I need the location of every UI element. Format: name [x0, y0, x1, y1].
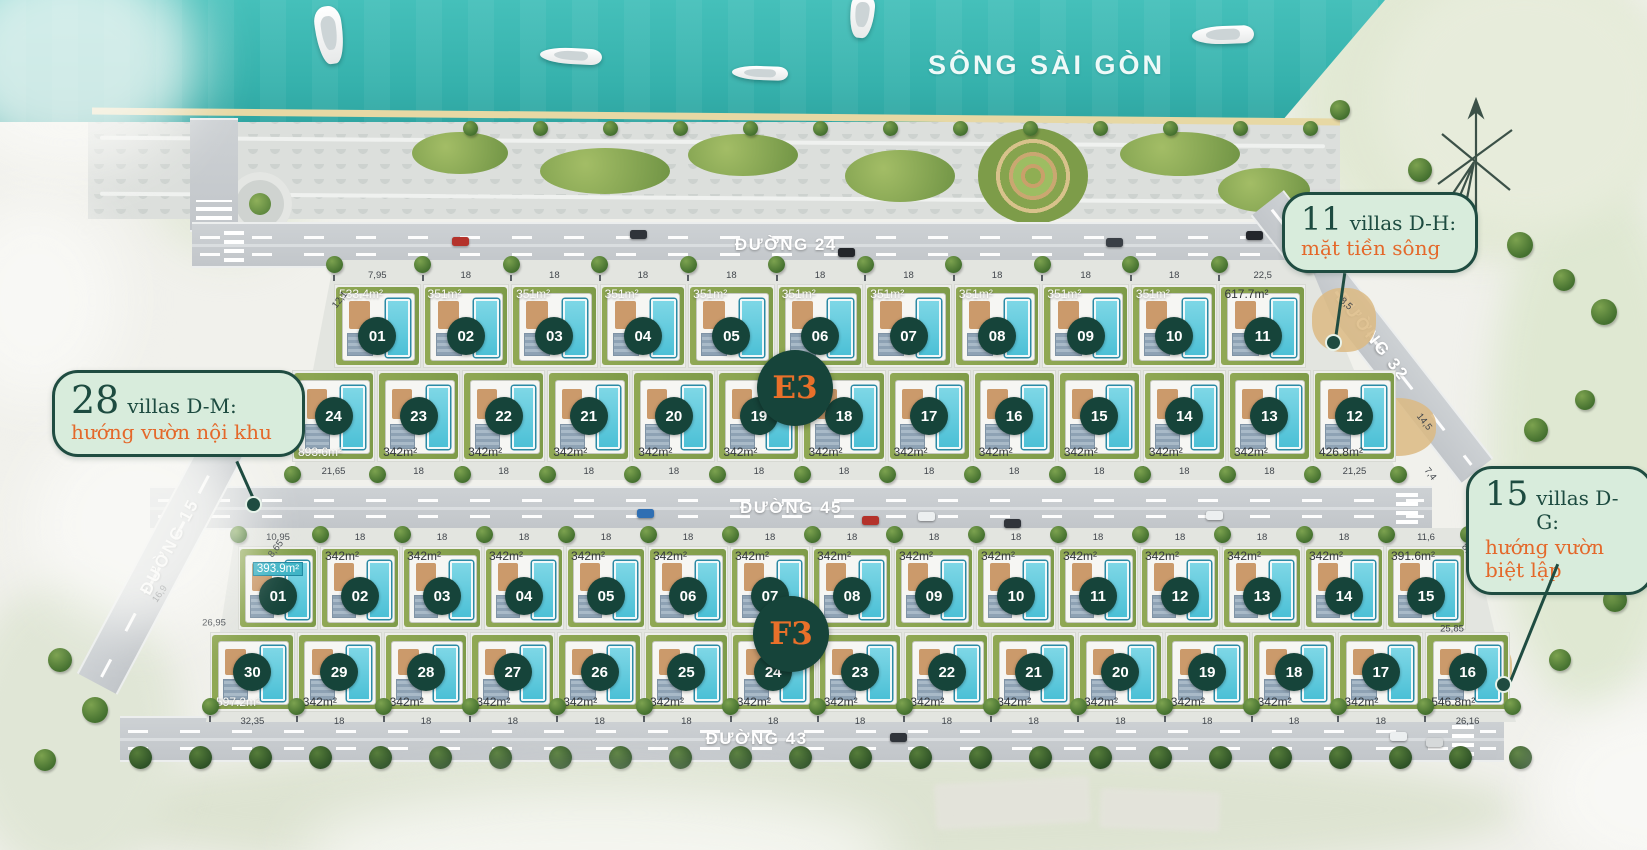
villa-plot-F3-27[interactable]: 27342m²18: [470, 632, 555, 712]
callout-count: 28: [71, 381, 119, 419]
tree: [1553, 269, 1575, 291]
villa-number-badge[interactable]: 08: [833, 577, 871, 615]
villa-plot-F3-12[interactable]: 12342m²18: [1140, 546, 1220, 630]
park-lawn: [412, 132, 508, 174]
lot-dimension: 18: [1115, 716, 1126, 727]
tree: [82, 697, 108, 723]
villa-plot-E3-14[interactable]: 14342m²18: [1143, 370, 1226, 462]
villa-plot-E3-21[interactable]: 21342m²18: [547, 370, 630, 462]
villa-number-badge[interactable]: 23: [841, 653, 879, 691]
villa-number-badge[interactable]: 05: [712, 317, 750, 355]
villa-number-badge[interactable]: 08: [978, 317, 1016, 355]
lot-dimension: 18: [583, 466, 594, 477]
tree: [883, 121, 898, 136]
villa-area-label: 342m²: [979, 445, 1013, 459]
villa-number-badge[interactable]: 26: [581, 653, 619, 691]
tree: [1034, 256, 1051, 273]
car: [838, 248, 855, 257]
tree: [1390, 466, 1407, 483]
villa-number-badge[interactable]: 05: [587, 577, 625, 615]
villa-plot-E3-04[interactable]: 04351m²18: [600, 284, 687, 368]
villa-number-badge[interactable]: 24: [315, 397, 353, 435]
villa-area-label: 351m²: [1047, 287, 1081, 301]
villa-plot-E3-17[interactable]: 17342m²18: [888, 370, 971, 462]
tree: [1591, 299, 1617, 325]
callout-subtitle: mặt tiền sông: [1301, 237, 1459, 260]
lot-dimension: 21,25: [1343, 466, 1367, 477]
villa-area-label: 342m²: [407, 549, 441, 563]
villa-plot-F3-19[interactable]: 19342m²18: [1165, 632, 1250, 712]
villa-plot-F3-03[interactable]: 03342m²18: [402, 546, 482, 630]
tree: [640, 526, 657, 543]
tree: [539, 466, 556, 483]
villa-area-label: 342m²: [1171, 695, 1205, 709]
park-lawn: [540, 148, 670, 194]
dimension-tick: [643, 716, 645, 722]
callout-title: villas D-G:: [1536, 486, 1635, 534]
tree: [909, 746, 932, 769]
lot-dimension: 18: [815, 270, 826, 281]
callout-subtitle: hướng vườn nội khu: [71, 421, 286, 444]
callout-heading: 28 villas D-M:: [71, 381, 286, 419]
tree: [636, 698, 653, 715]
faint-building: [1099, 788, 1220, 832]
dimension-tick: [422, 275, 424, 281]
villa-number-badge[interactable]: 15: [1407, 577, 1445, 615]
villa-plot-E3-09[interactable]: 09351m²18: [1042, 284, 1129, 368]
tree: [503, 256, 520, 273]
lot-dimension: 18: [437, 532, 448, 543]
tree: [1524, 418, 1548, 442]
villa-number-badge[interactable]: 01: [358, 317, 396, 355]
circular-garden: [978, 128, 1088, 224]
tree: [1023, 121, 1038, 136]
villa-plot-F3-20[interactable]: 20342m²18: [1078, 632, 1163, 712]
lot-dimension: 26,16: [1456, 716, 1480, 727]
villa-number-badge[interactable]: 15: [1080, 397, 1118, 435]
villa-area-label: 342m²: [653, 549, 687, 563]
tree: [1122, 256, 1139, 273]
lot-dimension: 7,95: [368, 270, 387, 281]
lot-dimension: 18: [519, 532, 530, 543]
river-label: SÔNG SÀI GÒN: [928, 50, 1165, 81]
boat-deck: [319, 16, 339, 51]
callout-subtitle: hướng vườn biệt lập: [1485, 536, 1635, 582]
villa-area-label: 597.2m²: [216, 695, 260, 709]
villa-plot-F3-01[interactable]: 01393.9m²10,95: [238, 546, 318, 630]
crosswalk: [196, 200, 232, 220]
edge-dimension: 25,85: [1440, 624, 1464, 635]
tree: [1163, 121, 1178, 136]
villa-plot-F3-23[interactable]: 23342m²18: [818, 632, 903, 712]
lot-dimension: 18: [1094, 466, 1105, 477]
tree: [1389, 746, 1412, 769]
car: [1106, 238, 1123, 247]
tree: [1219, 466, 1236, 483]
tree: [375, 698, 392, 715]
villa-number-badge[interactable]: 13: [1250, 397, 1288, 435]
villa-number-badge[interactable]: 10: [997, 577, 1035, 615]
villa-number-badge[interactable]: 11: [1244, 317, 1282, 355]
villa-number-badge[interactable]: 04: [505, 577, 543, 615]
dimension-tick: [864, 275, 866, 281]
villa-number-badge[interactable]: 14: [1325, 577, 1363, 615]
villa-plot-E3-12[interactable]: 12426.8m²21,25: [1313, 370, 1396, 462]
villa-number-badge[interactable]: 02: [341, 577, 379, 615]
lot-dimension: 11,6: [1417, 532, 1435, 543]
villa-area-label: 342m²: [1149, 445, 1183, 459]
road-label-duong-45: ĐƯỜNG 45: [740, 498, 842, 518]
villa-number-badge[interactable]: 16: [1449, 653, 1487, 691]
villa-plot-F3-11[interactable]: 11342m²18: [1058, 546, 1138, 630]
villa-plot-F3-30[interactable]: 30597.2m²32,35: [210, 632, 295, 712]
tree: [709, 466, 726, 483]
car: [862, 516, 879, 525]
villa-number-badge[interactable]: 13: [1243, 577, 1281, 615]
lot-dimension: 18: [847, 532, 858, 543]
lot-dimension: 18: [1011, 532, 1022, 543]
tree: [230, 526, 247, 543]
villa-number-badge[interactable]: 02: [447, 317, 485, 355]
villa-plot-F3-02[interactable]: 02342m²18: [320, 546, 400, 630]
villa-number-badge[interactable]: 10: [1155, 317, 1193, 355]
lot-dimension: 18: [1009, 466, 1020, 477]
lane-marking: [128, 747, 1496, 750]
callout-anchor-dot: [245, 496, 262, 513]
villa-number-badge[interactable]: 29: [320, 653, 358, 691]
tree: [857, 256, 874, 273]
villa-number-badge[interactable]: 14: [1165, 397, 1203, 435]
villa-plot-E3-08[interactable]: 08351m²18: [954, 284, 1041, 368]
villa-plot-E3-16[interactable]: 16342m²18: [973, 370, 1056, 462]
lot-dimension: 18: [1028, 716, 1039, 727]
villa-number-badge[interactable]: 21: [570, 397, 608, 435]
villa-area-label: 342m²: [650, 695, 684, 709]
villa-plot-F3-04[interactable]: 04342m²18: [484, 546, 564, 630]
villa-area-label: 393.9m²: [253, 562, 303, 576]
lot-dimension: 18: [765, 532, 776, 543]
villa-number-badge[interactable]: 21: [1015, 653, 1053, 691]
villa-number-badge[interactable]: 06: [801, 317, 839, 355]
tree: [1575, 390, 1595, 410]
callout-anchor-dot: [1325, 334, 1342, 351]
villa-plot-F3-25[interactable]: 25342m²18: [644, 632, 729, 712]
boat-deck: [553, 50, 588, 61]
villa-area-label: 893.6m²: [298, 445, 342, 459]
road-median: [120, 738, 1504, 741]
lot-dimension: 18: [681, 716, 692, 727]
tree: [549, 698, 566, 715]
road-label-duong-24: ĐƯỜNG 24: [735, 235, 837, 255]
villa-plot-F3-28[interactable]: 28342m²18: [384, 632, 469, 712]
park-lawn: [845, 150, 955, 202]
villa-area-label: 342m²: [325, 549, 359, 563]
lot-dimension: 18: [683, 532, 694, 543]
callout-heading: 11 villas D-H:: [1301, 203, 1459, 235]
villa-number-badge[interactable]: 11: [1079, 577, 1117, 615]
villa-area-label: 342m²: [1063, 549, 1097, 563]
villa-area-label: 351m²: [516, 287, 550, 301]
villa-plot-F3-21[interactable]: 21342m²18: [991, 632, 1076, 712]
tree: [369, 466, 386, 483]
tree: [1330, 698, 1347, 715]
villa-number-badge[interactable]: 17: [1362, 653, 1400, 691]
tree: [1214, 526, 1231, 543]
callout-villas-d-m: 28 villas D-M: hướng vườn nội khu: [52, 370, 305, 457]
lot-dimension: 18: [924, 466, 935, 477]
villa-area-label: 546.8m²: [1431, 695, 1475, 709]
road-duong-45[interactable]: ĐƯỜNG 45: [150, 486, 1432, 530]
villa-number-badge[interactable]: 18: [825, 397, 863, 435]
villa-area-label: 342m²: [571, 549, 605, 563]
dimension-tick: [209, 716, 211, 722]
dimension-tick: [953, 275, 955, 281]
villa-plot-E3-07[interactable]: 07351m²18: [865, 284, 952, 368]
lot-dimension: 18: [355, 532, 366, 543]
boat-deck: [744, 68, 776, 77]
villa-area-label: 342m²: [303, 695, 337, 709]
villa-number-badge[interactable]: 20: [1101, 653, 1139, 691]
lot-dimension: 18: [421, 716, 432, 727]
tree: [463, 121, 478, 136]
lot-dimension: 18: [1080, 270, 1091, 281]
villa-number-badge[interactable]: 09: [1067, 317, 1105, 355]
tree: [722, 698, 739, 715]
callout-villas-d-g: 15 villas D-G: hướng vườn biệt lập: [1466, 466, 1647, 595]
villa-area-label: 342m²: [563, 695, 597, 709]
tree: [953, 121, 968, 136]
villa-plot-F3-16[interactable]: 16546.8m²26,16: [1425, 632, 1510, 712]
tree: [429, 746, 452, 769]
lot-dimension: 18: [768, 716, 779, 727]
tree: [1549, 649, 1571, 671]
villa-plot-F3-13[interactable]: 13342m²18: [1222, 546, 1302, 630]
tree: [813, 121, 828, 136]
tree: [1507, 232, 1533, 258]
dimension-tick: [1218, 275, 1220, 281]
villa-plot-F3-10[interactable]: 10342m²18: [976, 546, 1056, 630]
villa-number-badge[interactable]: 18: [1275, 653, 1313, 691]
villa-plot-E3-10[interactable]: 10351m²18: [1131, 284, 1218, 368]
tree: [1449, 746, 1472, 769]
villa-number-badge[interactable]: 22: [485, 397, 523, 435]
villa-area-label: 342m²: [1309, 549, 1343, 563]
dimension-tick: [1164, 716, 1166, 722]
villa-number-badge[interactable]: 27: [494, 653, 532, 691]
tree: [34, 749, 56, 771]
tree: [729, 746, 752, 769]
tree: [454, 466, 471, 483]
callout-count: 11: [1301, 203, 1342, 235]
lot-dimension: 18: [334, 716, 345, 727]
villa-area-label: 342m²: [489, 549, 523, 563]
villa-number-badge[interactable]: 12: [1335, 397, 1373, 435]
villa-plot-E3-15[interactable]: 15342m²18: [1058, 370, 1141, 462]
villa-area-label: 342m²: [735, 549, 769, 563]
villa-plot-F3-17[interactable]: 17342m²18: [1338, 632, 1423, 712]
lot-dimension: 18: [992, 270, 1003, 281]
villa-number-badge[interactable]: 25: [667, 653, 705, 691]
dimension-tick: [599, 275, 601, 281]
lot-dimension: 18: [929, 532, 940, 543]
tree: [1029, 746, 1052, 769]
villa-number-badge[interactable]: 03: [423, 577, 461, 615]
lot-dimension: 18: [601, 532, 612, 543]
lot-dimension: 18: [1375, 716, 1386, 727]
villa-area-label: 342m²: [899, 549, 933, 563]
villa-number-badge[interactable]: 19: [1188, 653, 1226, 691]
tree: [476, 526, 493, 543]
villa-area-label: 342m²: [476, 695, 510, 709]
villa-area-label: 351m²: [870, 287, 904, 301]
tree: [1089, 746, 1112, 769]
villa-plot-F3-05[interactable]: 05342m²18: [566, 546, 646, 630]
dimension-tick: [556, 716, 558, 722]
villa-plot-E3-03[interactable]: 03351m²18: [511, 284, 598, 368]
tree: [789, 746, 812, 769]
tree: [1504, 698, 1521, 715]
villa-number-badge[interactable]: 03: [535, 317, 573, 355]
car: [1004, 519, 1021, 528]
villa-number-badge[interactable]: 06: [669, 577, 707, 615]
villa-number-badge[interactable]: 30: [233, 653, 271, 691]
dimension-tick: [776, 275, 778, 281]
crosswalk: [1396, 489, 1418, 524]
villa-plot-F3-18[interactable]: 18342m²18: [1252, 632, 1337, 712]
lot-dimension: 18: [1175, 532, 1186, 543]
block-badge-F3[interactable]: F3: [753, 596, 829, 672]
tree: [1209, 746, 1232, 769]
tree: [969, 746, 992, 769]
lot-dimension: 18: [1179, 466, 1190, 477]
villa-number-badge[interactable]: 17: [910, 397, 948, 435]
lot-dimension: 18: [1202, 716, 1213, 727]
villa-plot-F3-06[interactable]: 06342m²18: [648, 546, 728, 630]
lot-dimension: 22,5: [1253, 270, 1272, 281]
tree: [1509, 746, 1532, 769]
boat-deck: [1205, 29, 1240, 41]
tree: [1049, 466, 1066, 483]
car: [452, 237, 469, 246]
lot-dimension: 18: [1093, 532, 1104, 543]
tree: [288, 698, 305, 715]
tree: [1329, 746, 1352, 769]
villa-number-badge[interactable]: 28: [407, 653, 445, 691]
tree: [249, 746, 272, 769]
villa-number-badge[interactable]: 01: [259, 577, 297, 615]
callout-villas-d-h: 11 villas D-H: mặt tiền sông: [1282, 192, 1478, 273]
lot-dimension: 18: [594, 716, 605, 727]
villa-number-badge[interactable]: 04: [624, 317, 662, 355]
villa-area-label: 342m²: [723, 445, 757, 459]
edge-dimension: 26,95: [202, 618, 226, 629]
callout-anchor-dot: [1495, 676, 1512, 693]
tree: [1233, 121, 1248, 136]
lot-dimension: 18: [855, 716, 866, 727]
villa-plot-E3-11[interactable]: 11617.7m²22,5: [1219, 284, 1306, 368]
tree: [1296, 526, 1313, 543]
lot-dimension: 18: [507, 716, 518, 727]
villa-plot-E3-02[interactable]: 02351m²18: [423, 284, 510, 368]
tree: [462, 698, 479, 715]
villa-plot-F3-15[interactable]: 15391.6m²11,6: [1386, 546, 1466, 630]
villa-area-label: 342m²: [1258, 695, 1292, 709]
villa-plot-F3-14[interactable]: 14342m²18: [1304, 546, 1384, 630]
tree: [284, 466, 301, 483]
villa-number-badge[interactable]: 22: [928, 653, 966, 691]
tree: [309, 746, 332, 769]
villa-number-badge[interactable]: 16: [995, 397, 1033, 435]
car: [1426, 738, 1443, 747]
villa-number-badge[interactable]: 09: [915, 577, 953, 615]
tree: [549, 746, 572, 769]
block-badge-E3[interactable]: E3: [757, 350, 833, 426]
tree: [1304, 466, 1321, 483]
villa-area-label: 342m²: [1084, 695, 1118, 709]
callout-title: villas D-H:: [1350, 211, 1456, 235]
villa-area-label: 342m²: [808, 445, 842, 459]
villa-plot-F3-09[interactable]: 09342m²18: [894, 546, 974, 630]
dimension-tick: [730, 716, 732, 722]
tree: [809, 698, 826, 715]
villa-plot-F3-29[interactable]: 29342m²18: [297, 632, 382, 712]
dimension-tick: [510, 275, 512, 281]
villa-number-badge[interactable]: 07: [890, 317, 928, 355]
tree: [1093, 121, 1108, 136]
lot-dimension: 18: [669, 466, 680, 477]
villa-number-badge[interactable]: 12: [1161, 577, 1199, 615]
tree: [945, 256, 962, 273]
villa-number-badge[interactable]: 20: [655, 397, 693, 435]
lot-dimension: 18: [1289, 716, 1300, 727]
dimension-tick: [817, 716, 819, 722]
villa-area-label: 351m²: [782, 287, 816, 301]
villa-number-badge[interactable]: 23: [400, 397, 438, 435]
tree: [794, 466, 811, 483]
tree: [1243, 698, 1260, 715]
villa-plot-E3-13[interactable]: 13342m²18: [1228, 370, 1311, 462]
villa-area-label: 342m²: [910, 695, 944, 709]
villa-area-label: 342m²: [981, 549, 1015, 563]
crosswalk: [224, 226, 244, 262]
villa-area-label: 426.8m²: [1319, 445, 1363, 459]
lot-dimension: 18: [1169, 270, 1180, 281]
tree: [669, 746, 692, 769]
dimension-tick: [1337, 716, 1339, 722]
villa-plot-E3-05[interactable]: 05351m²18: [688, 284, 775, 368]
tree: [1134, 466, 1151, 483]
lot-dimension: 18: [726, 270, 737, 281]
dimension-tick: [1041, 275, 1043, 281]
car: [890, 733, 907, 742]
lot-dimension: 21,65: [322, 466, 346, 477]
tree: [1211, 256, 1228, 273]
tree: [609, 746, 632, 769]
villa-plot-F3-26[interactable]: 26342m²18: [557, 632, 642, 712]
lot-dimension: 18: [413, 466, 424, 477]
tree: [591, 256, 608, 273]
tree: [673, 121, 688, 136]
tree: [603, 121, 618, 136]
villa-plot-E3-22[interactable]: 22342m²18: [462, 370, 545, 462]
villa-plot-F3-22[interactable]: 22342m²18: [904, 632, 989, 712]
villa-area-label: 342m²: [824, 695, 858, 709]
villa-plot-E3-20[interactable]: 20342m²18: [632, 370, 715, 462]
villa-plot-E3-23[interactable]: 23342m²18: [377, 370, 460, 462]
dimension-tick: [1077, 716, 1079, 722]
dimension-tick: [990, 716, 992, 722]
tree: [1156, 698, 1173, 715]
